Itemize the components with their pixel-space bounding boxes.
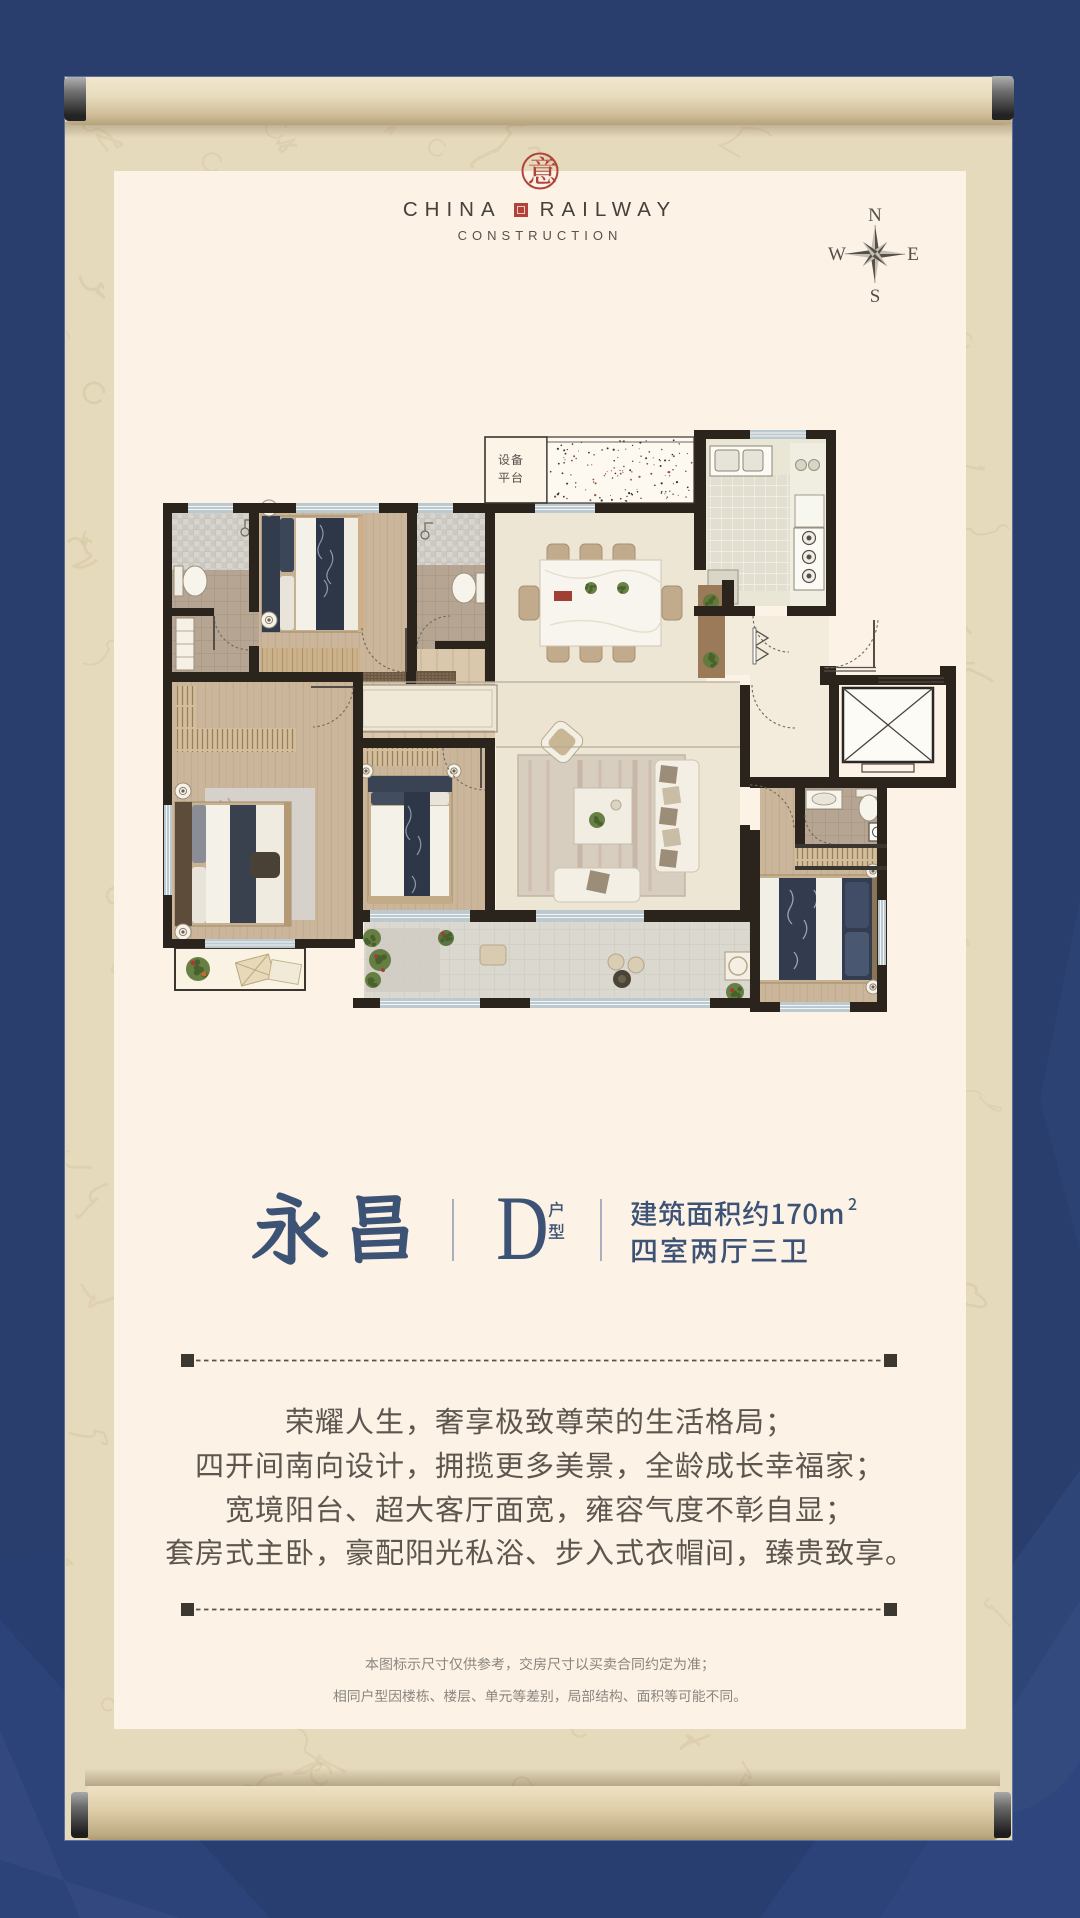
svg-text:S: S xyxy=(870,286,881,307)
svg-text:N: N xyxy=(868,205,882,226)
svg-text:D: D xyxy=(496,1177,548,1279)
svg-text:W: W xyxy=(828,244,846,265)
svg-text:E: E xyxy=(907,244,919,265)
